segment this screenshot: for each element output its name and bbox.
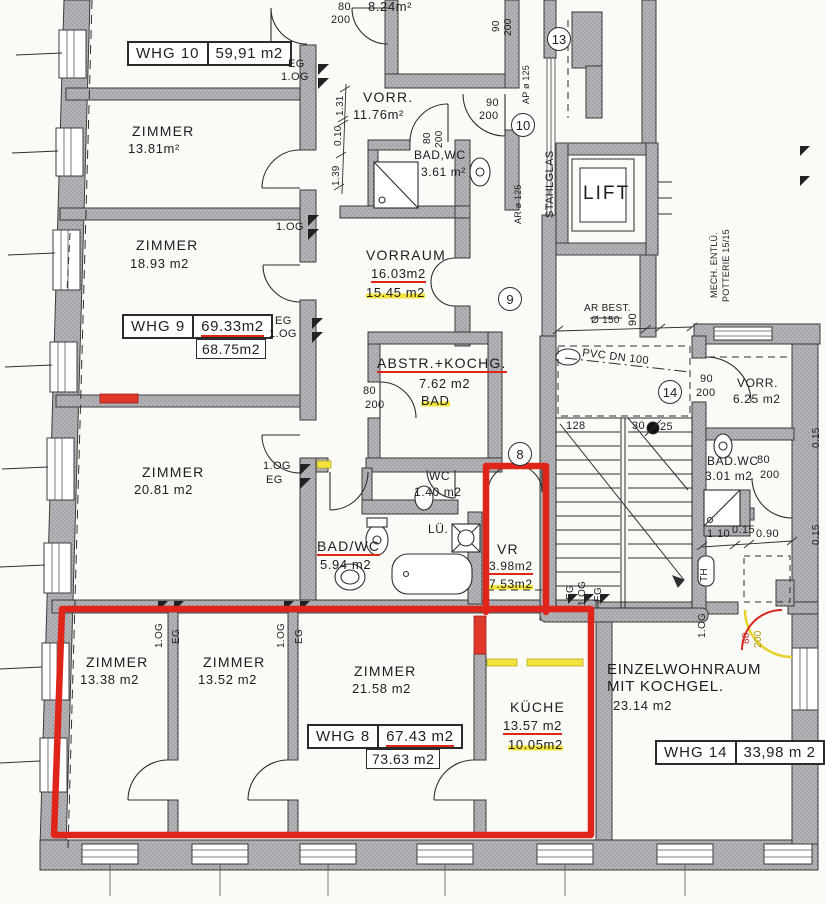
ap125-label: AP ø 125	[522, 65, 531, 104]
th-label: TH	[700, 568, 711, 582]
dim-131: 1.31	[336, 95, 347, 116]
room-kueche-area: 13.57 m2	[503, 719, 562, 733]
room-vorr-top-area: 11.76m²	[353, 108, 404, 122]
og-label-7: 1.OG	[578, 581, 589, 606]
dim-128: 128	[566, 421, 586, 433]
room-vorr-top-name: VORR.	[363, 90, 413, 105]
room-vorraum-area: 16.03m2	[371, 267, 426, 281]
room-vr-area: 3.98m2	[489, 560, 533, 573]
room-badwc-top-area: 3.61 m²	[421, 166, 466, 179]
dim-30: 30	[632, 421, 645, 433]
dim-010: 0.10	[334, 125, 345, 146]
whg8-area: 67.43 m2	[379, 726, 460, 747]
room-zimmer1352-name: ZIMMER	[203, 655, 265, 670]
room-zimmer1338-name: ZIMMER	[86, 655, 148, 670]
dim-015-right2: 0.15	[812, 524, 823, 545]
door-200-c10: 200	[479, 111, 499, 123]
fixtures	[335, 158, 740, 594]
lift-label: LIFT	[583, 184, 630, 204]
ar-best-label: AR BEST.	[584, 304, 631, 315]
ar-best-diameter: Ø 150	[591, 316, 620, 327]
door-80-einzel: 80	[742, 632, 753, 644]
whg8-area-revised: 73.63 m2	[366, 749, 440, 769]
door-90-tr: 90	[492, 20, 503, 32]
og-label-3: 1.OG	[269, 329, 297, 341]
whg8-name: WHG 8	[309, 726, 379, 747]
room-zimmer1352-area: 13.52 m2	[198, 673, 257, 687]
eg-label-1: EG	[288, 59, 305, 71]
door-200-top: 200	[331, 15, 351, 27]
room-wc-name: WC	[429, 470, 450, 483]
room-badwc-mid-name: BAD/WC	[317, 539, 380, 554]
door-200-abstr: 200	[365, 400, 385, 412]
position-circle-10: 10	[511, 113, 535, 137]
door-200-vorr625: 200	[696, 388, 716, 400]
room-wc-area: 1.40 m2	[414, 486, 462, 499]
whg9-area: 69.33m2	[194, 316, 271, 337]
potterie-label: POTTERIE 15/15	[722, 229, 731, 302]
whg8-label-box: WHG 8 67.43 m2	[307, 724, 463, 749]
room-abstr-name: ABSTR.+KOCHG.	[377, 356, 507, 371]
whg9-label-box: WHG 9 69.33m2	[122, 314, 273, 339]
whg8-outline	[54, 466, 591, 835]
room-einzel-name-line2: MIT KOCHGEL.	[607, 679, 724, 695]
position-circle-8: 8	[508, 442, 532, 466]
whg14-name: WHG 14	[657, 742, 737, 763]
dim-090: 0.90	[756, 529, 779, 541]
room-vr-area-revised: 7.53m2	[489, 578, 533, 591]
og-label-1: 1.OG	[281, 72, 309, 84]
room-kueche-area-revised: 10.05m2	[508, 738, 563, 752]
eg-label-7: EG	[566, 585, 577, 600]
room-zimmer1381-area: 13.81m²	[128, 142, 180, 156]
door-200-badwc301: 200	[760, 470, 780, 482]
room-kueche-name: KÜCHE	[510, 700, 565, 715]
room-zimmer2081-name: ZIMMER	[142, 465, 204, 480]
eg-label-8: EG	[594, 587, 605, 602]
eg-label-3: EG	[275, 316, 292, 328]
position-circle-13: 13	[547, 27, 571, 51]
lue-label: LÜ.	[428, 523, 448, 536]
stairs	[556, 418, 692, 608]
whg9-name: WHG 9	[124, 316, 194, 337]
room-824-area: 8.24m²	[368, 0, 412, 14]
dim-110: 1.10	[707, 529, 730, 541]
door-80-top: 80	[338, 2, 351, 14]
eg-label-5: EG	[172, 629, 183, 644]
whg10-area: 59,91 m2	[209, 43, 290, 64]
position-circle-9: 9	[498, 287, 522, 311]
room-zimmer2081-area: 20.81 m2	[134, 483, 193, 497]
room-abstr-note: BAD	[421, 394, 450, 408]
whg14-label-box: WHG 14 33,98 m 2	[655, 740, 825, 765]
door-80-bad361: 80	[423, 132, 434, 144]
whg10-label-box: WHG 10 59,91 m2	[127, 41, 292, 66]
room-vr-name: VR	[497, 542, 519, 557]
door-200-bad361: 200	[435, 130, 446, 148]
room-badwc-right-area: 3.01 m2	[705, 470, 753, 483]
door-90-c10: 90	[486, 98, 499, 110]
room-badwc-mid-area: 5.94 m2	[320, 558, 371, 572]
room-einzel-area: 23.14 m2	[613, 699, 672, 713]
door-80-abstr: 80	[363, 386, 376, 398]
whg10-name: WHG 10	[129, 43, 209, 64]
og-label-5: 1.OG	[155, 623, 166, 648]
room-zimmer1381-name: ZIMMER	[132, 124, 194, 139]
room-zimmer1338-area: 13.38 m2	[80, 673, 139, 687]
og-label-6: 1.OG	[277, 623, 288, 648]
dim-139: 1.39	[332, 165, 343, 186]
og-label-2: 1.OG	[276, 222, 304, 234]
ar125-label: AR ø 125	[514, 184, 523, 224]
whg9-area-revised: 68.75m2	[196, 339, 266, 359]
room-badwc-right-name: BAD.WC	[707, 455, 759, 468]
eg-label-4: EG	[266, 475, 283, 487]
dim-25: 25	[660, 422, 673, 434]
floor-plan: WHG 10 59,91 m2 WHG 9 69.33m2 68.75m2 WH…	[0, 0, 825, 904]
door-200-einzel: 200	[754, 630, 765, 648]
dim-015-right1: 0.15	[812, 427, 823, 448]
position-circle-14: 14	[658, 380, 682, 404]
room-zimmer1893-area: 18.93 m2	[130, 257, 189, 271]
room-einzel-name-line1: EINZELWOHNRAUM	[607, 662, 761, 678]
whg14-area: 33,98 m 2	[737, 742, 823, 763]
door-90-vorr625: 90	[700, 374, 713, 386]
door-200-tr: 200	[504, 18, 515, 36]
room-zimmer1893-name: ZIMMER	[136, 238, 198, 253]
eg-label-6: EG	[295, 629, 306, 644]
room-vorraum-name: VORRAUM	[366, 248, 446, 263]
room-badwc-top-name: BAD,WC	[414, 149, 466, 162]
stahlglas-label: STAHLGLAS	[545, 150, 557, 218]
room-zimmer2158-name: ZIMMER	[354, 664, 416, 679]
room-abstr-area: 7.62 m2	[419, 377, 470, 391]
door-80-badwc301: 80	[757, 455, 770, 467]
room-zimmer2158-area: 21.58 m2	[352, 682, 411, 696]
dim-015: 0.15	[732, 525, 755, 537]
og-label-4: 1.OG	[263, 461, 291, 473]
room-vorr-right-name: VORR.	[737, 377, 778, 390]
room-vorraum-area-revised: 15.45 m2	[366, 286, 425, 300]
room-vorr-right-area: 6.25 m2	[733, 393, 781, 406]
og-label-9: 1.OG	[698, 613, 709, 638]
dim-90-stair: 90	[628, 313, 640, 326]
mech-entlu-label: MECH. ENTLÜ.	[710, 232, 719, 298]
